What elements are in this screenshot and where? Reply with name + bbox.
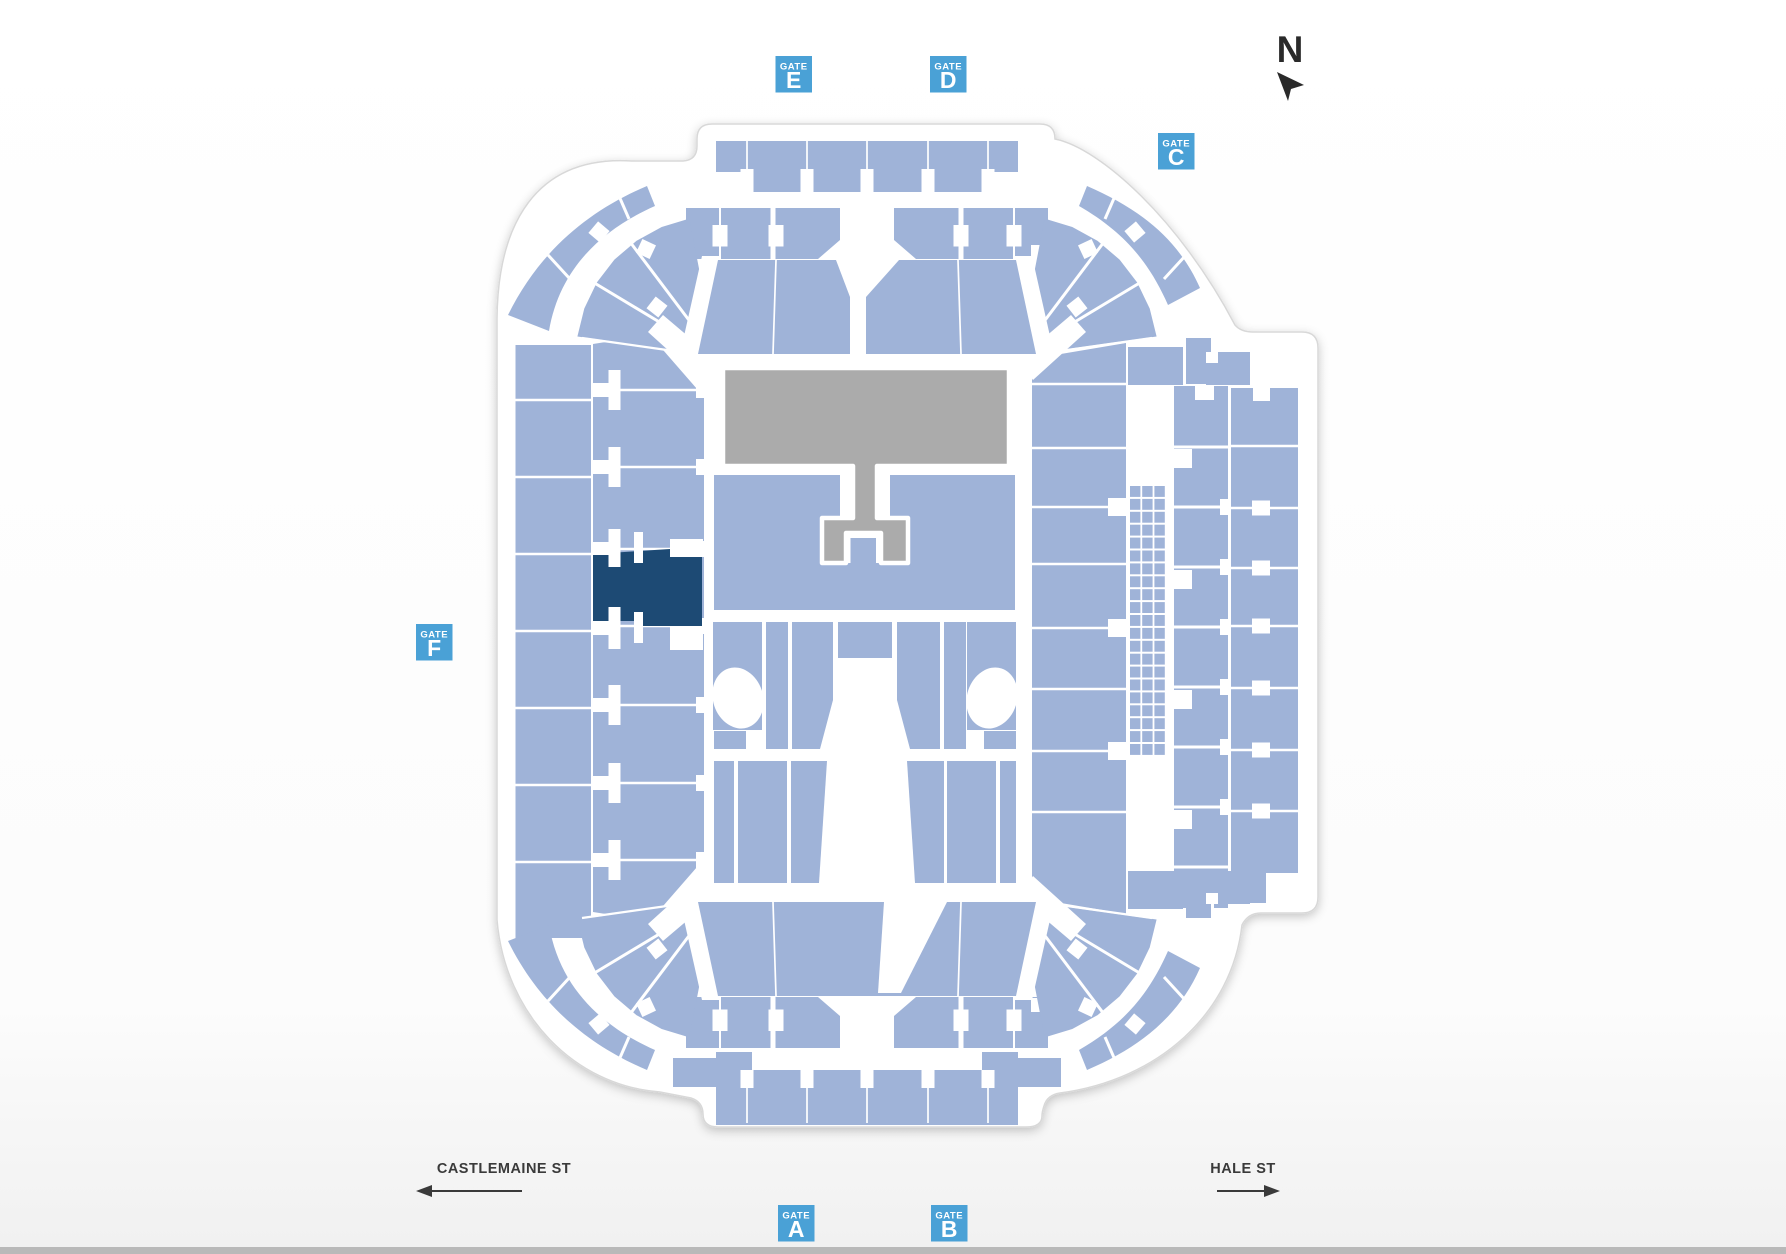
svg-text:F: F bbox=[427, 635, 441, 661]
svg-text:N: N bbox=[1277, 29, 1304, 70]
svg-text:A: A bbox=[788, 1216, 805, 1242]
svg-text:CASTLEMAINE ST: CASTLEMAINE ST bbox=[437, 1161, 571, 1177]
svg-text:HALE ST: HALE ST bbox=[1210, 1161, 1276, 1177]
svg-text:D: D bbox=[940, 67, 957, 93]
svg-text:C: C bbox=[1168, 144, 1185, 170]
svg-text:B: B bbox=[941, 1216, 958, 1242]
svg-text:E: E bbox=[786, 67, 801, 93]
